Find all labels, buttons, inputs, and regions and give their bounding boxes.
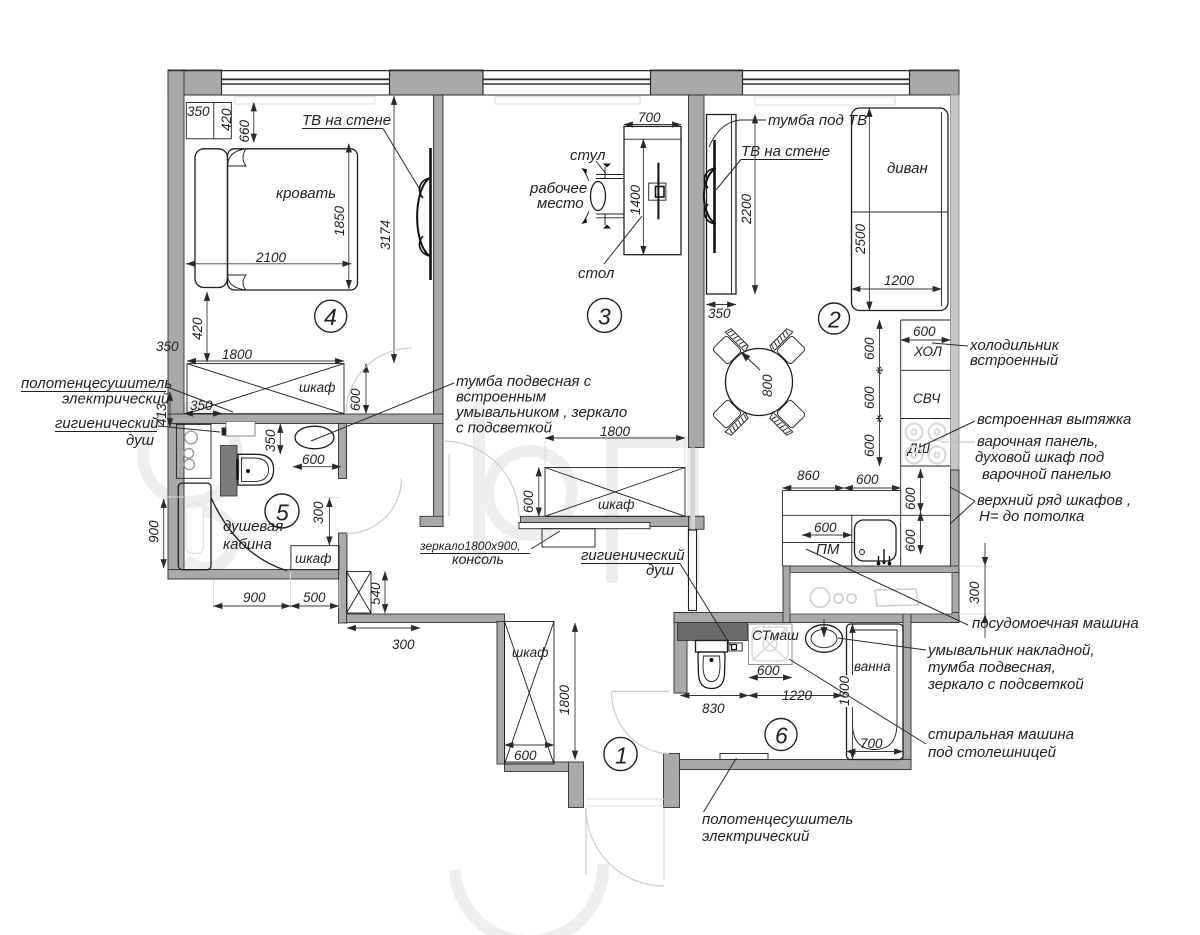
svg-text:место: место	[537, 195, 584, 212]
svg-text:600: 600	[903, 529, 918, 552]
svg-text:шкаф: шкаф	[299, 380, 335, 395]
svg-text:гигиенический: гигиенический	[55, 415, 159, 432]
svg-text:700: 700	[860, 736, 883, 751]
svg-text:встроенным: встроенным	[456, 389, 546, 406]
svg-text:2500: 2500	[853, 223, 868, 255]
svg-text:тумба подвесная с: тумба подвесная с	[456, 373, 592, 390]
svg-text:1: 1	[615, 743, 628, 769]
svg-text:умывальником , зеркало: умывальником , зеркало	[455, 404, 627, 421]
svg-text:350: 350	[156, 339, 179, 354]
svg-text:600: 600	[302, 452, 325, 467]
svg-text:кровать: кровать	[276, 185, 336, 202]
svg-text:860: 860	[797, 468, 820, 483]
svg-text:3: 3	[598, 304, 611, 330]
svg-text:2200: 2200	[739, 193, 754, 225]
svg-text:6: 6	[775, 723, 788, 749]
svg-text:600: 600	[862, 434, 877, 457]
svg-text:600: 600	[856, 472, 879, 487]
svg-text:600: 600	[862, 386, 877, 409]
svg-text:300: 300	[311, 501, 326, 524]
svg-text:духовой шкаф под: духовой шкаф под	[975, 449, 1104, 466]
svg-text:300: 300	[392, 637, 415, 652]
svg-text:кабина: кабина	[223, 536, 272, 553]
svg-text:стиральная машина: стиральная машина	[928, 726, 1074, 743]
svg-text:электрический: электрический	[62, 391, 170, 408]
svg-text:1800: 1800	[222, 347, 253, 362]
svg-text:зеркало с подсветкой: зеркало с подсветкой	[927, 676, 1084, 693]
svg-text:умывальник накладной,: умывальник накладной,	[927, 642, 1095, 659]
svg-text:стул: стул	[570, 147, 606, 164]
svg-text:электрический: электрический	[702, 828, 810, 845]
svg-text:700: 700	[638, 110, 661, 125]
svg-text:встроенный: встроенный	[970, 352, 1059, 369]
svg-text:1850: 1850	[332, 205, 347, 236]
svg-text:500: 500	[303, 590, 326, 605]
svg-text:шкаф: шкаф	[295, 551, 331, 566]
svg-text:540: 540	[368, 582, 383, 605]
svg-text:под столешницей: под столешницей	[928, 744, 1057, 761]
svg-text:350: 350	[263, 429, 278, 452]
svg-text:диван: диван	[887, 160, 928, 177]
svg-text:5: 5	[276, 500, 289, 526]
svg-text:СТмаш: СТмаш	[752, 627, 799, 643]
svg-text:4: 4	[324, 304, 337, 330]
svg-text:420: 420	[190, 317, 205, 340]
svg-text:душ: душ	[646, 562, 675, 579]
svg-text:шкаф: шкаф	[512, 645, 548, 660]
svg-text:1200: 1200	[884, 273, 915, 288]
svg-text:варочная панель,: варочная панель,	[977, 433, 1099, 450]
svg-text:душ: душ	[126, 432, 155, 449]
svg-text:ванна: ванна	[854, 659, 891, 674]
svg-text:ТВ на стене: ТВ на стене	[741, 143, 830, 160]
svg-text:830: 830	[702, 701, 725, 716]
svg-text:2100: 2100	[255, 250, 287, 265]
svg-text:стол: стол	[578, 265, 615, 282]
svg-text:600: 600	[814, 520, 837, 535]
svg-text:3174: 3174	[378, 220, 393, 250]
svg-text:встроенная вытяжка: встроенная вытяжка	[977, 411, 1131, 428]
svg-text:консоль: консоль	[452, 551, 504, 567]
svg-text:с подсветкой: с подсветкой	[456, 420, 553, 437]
svg-text:1400: 1400	[628, 184, 643, 215]
svg-text:1220: 1220	[782, 688, 813, 703]
svg-text:350: 350	[187, 104, 210, 119]
svg-text:1800: 1800	[600, 424, 631, 439]
svg-text:2: 2	[827, 307, 841, 333]
svg-text:посудомоечная машина: посудомоечная машина	[972, 615, 1139, 632]
svg-text:1800: 1800	[557, 684, 572, 715]
svg-text:350: 350	[708, 306, 731, 321]
svg-text:СВЧ: СВЧ	[913, 391, 941, 406]
svg-text:800: 800	[760, 374, 775, 397]
svg-text:полотенцесушитель: полотенцесушитель	[702, 811, 853, 828]
svg-text:300: 300	[967, 581, 982, 604]
svg-text:600: 600	[903, 487, 918, 510]
svg-text:600: 600	[862, 337, 877, 360]
svg-text:420: 420	[219, 108, 234, 131]
svg-text:600: 600	[514, 748, 537, 763]
svg-text:600: 600	[757, 663, 780, 678]
svg-text:верхний ряд шкафов ,: верхний ряд шкафов ,	[977, 492, 1131, 509]
svg-text:ХОЛ: ХОЛ	[913, 344, 943, 359]
svg-text:900: 900	[243, 590, 266, 605]
svg-text:ТВ на стене: ТВ на стене	[302, 112, 391, 129]
svg-text:600: 600	[913, 324, 936, 339]
svg-text:600: 600	[521, 490, 536, 513]
svg-text:900: 900	[147, 520, 162, 543]
svg-text:660: 660	[237, 119, 252, 142]
svg-text:тумба подвесная,: тумба подвесная,	[928, 659, 1056, 676]
svg-text:варочной панелью: варочной панелью	[982, 466, 1111, 483]
svg-text:полотенцесушитель: полотенцесушитель	[21, 375, 172, 392]
svg-text:шкаф: шкаф	[598, 497, 634, 512]
svg-text:Н= до потолка: Н= до потолка	[979, 508, 1084, 525]
